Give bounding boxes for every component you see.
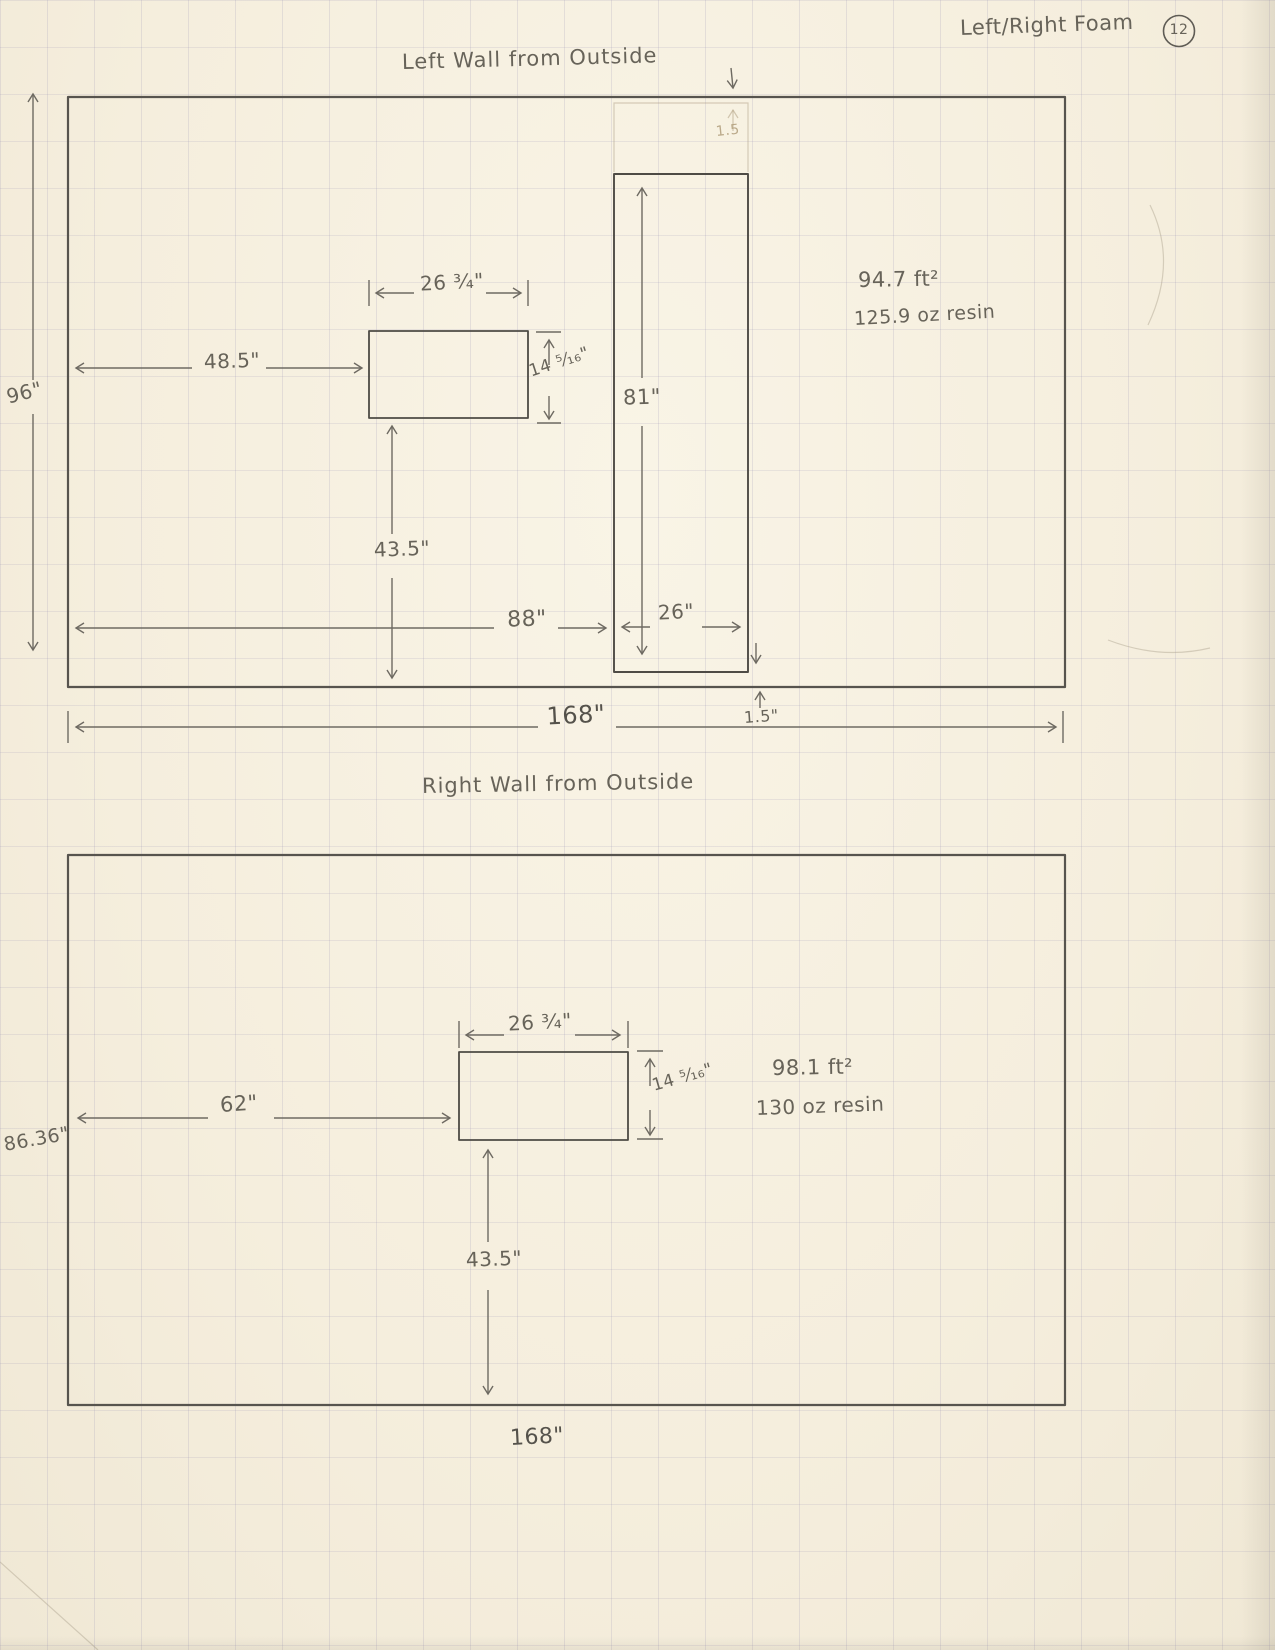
scan-edge-shadow-right (1241, 0, 1275, 1650)
left-window-width-label: 26 ³⁄₄" (412, 268, 491, 296)
right-wall-width-label: 168" (509, 1423, 564, 1451)
left-door-bottom-gap-label: 1.5" (743, 706, 779, 727)
left-wall-drawing (33, 68, 1065, 743)
right-wall-resin-label: 130 oz resin (756, 1092, 885, 1120)
left-sill-height-label: 43.5" (366, 535, 439, 561)
left-door-width-label: 26" (649, 598, 702, 625)
door-top-pointer-arrow (731, 68, 733, 88)
left-wall-outline (68, 97, 1065, 687)
right-window-outline (459, 1052, 628, 1140)
left-door-outline (614, 174, 748, 672)
right-wall-area-label: 98.1 ft² (772, 1055, 854, 1080)
scan-edge-shadow-bottom (0, 1636, 1275, 1650)
right-wall-drawing (68, 855, 1065, 1405)
left-door-height-label: 81" (614, 384, 671, 410)
paper-creases (0, 205, 1210, 1650)
paper-crease (1148, 205, 1164, 325)
left-door-top-gap-label: 1.5 (715, 122, 740, 140)
paper-crease (1108, 640, 1210, 653)
page-number: 12 (1168, 22, 1190, 38)
right-wall-outline (68, 855, 1065, 1405)
right-window-width-label: 26 ³⁄₄" (499, 1008, 580, 1036)
left-wall-width-label: 168" (537, 699, 614, 731)
left-door-offset-label: 88" (498, 606, 557, 633)
scanned-graph-paper-page: Left/Right Foam 12 Left Wall from Outsid… (0, 0, 1275, 1650)
left-window-offset-label: 48.5" (194, 347, 271, 374)
right-sill-height-label: 43.5" (458, 1245, 531, 1271)
left-window-outline (369, 331, 528, 418)
right-wall-title: Right Wall from Outside (422, 769, 695, 798)
left-wall-area-label: 94.7 ft² (858, 267, 940, 292)
right-window-offset-label: 62" (205, 1089, 273, 1118)
drawing-linework (0, 0, 1275, 1650)
